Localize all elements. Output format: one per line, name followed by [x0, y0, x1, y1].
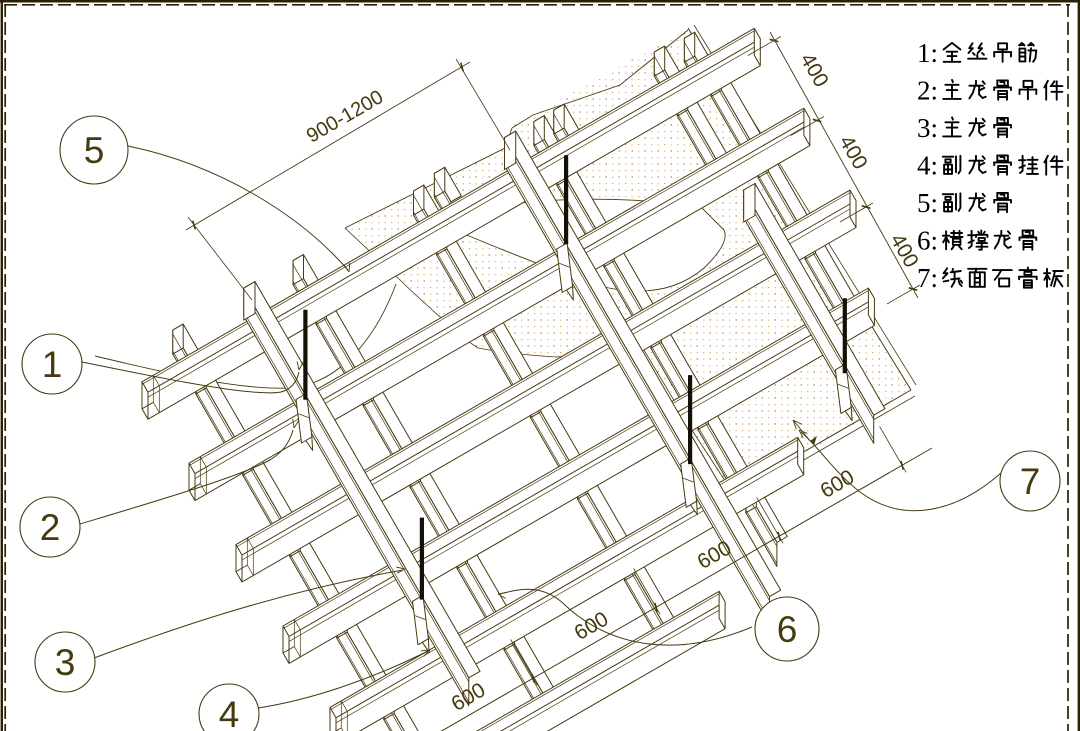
svg-text:4:: 4:	[917, 151, 938, 181]
svg-text:7: 7	[1020, 461, 1041, 502]
svg-text:7:: 7:	[917, 263, 938, 293]
svg-text:5:: 5:	[917, 188, 938, 218]
svg-text:3:: 3:	[917, 113, 938, 143]
svg-text:6:: 6:	[917, 226, 938, 256]
svg-text:4: 4	[219, 694, 240, 731]
svg-text:6: 6	[777, 609, 798, 650]
svg-text:1:: 1:	[917, 38, 938, 68]
svg-text:2:: 2:	[917, 76, 938, 106]
svg-text:5: 5	[84, 130, 105, 171]
svg-text:3: 3	[55, 642, 76, 683]
svg-text:1: 1	[42, 344, 63, 385]
svg-text:2: 2	[40, 507, 61, 548]
